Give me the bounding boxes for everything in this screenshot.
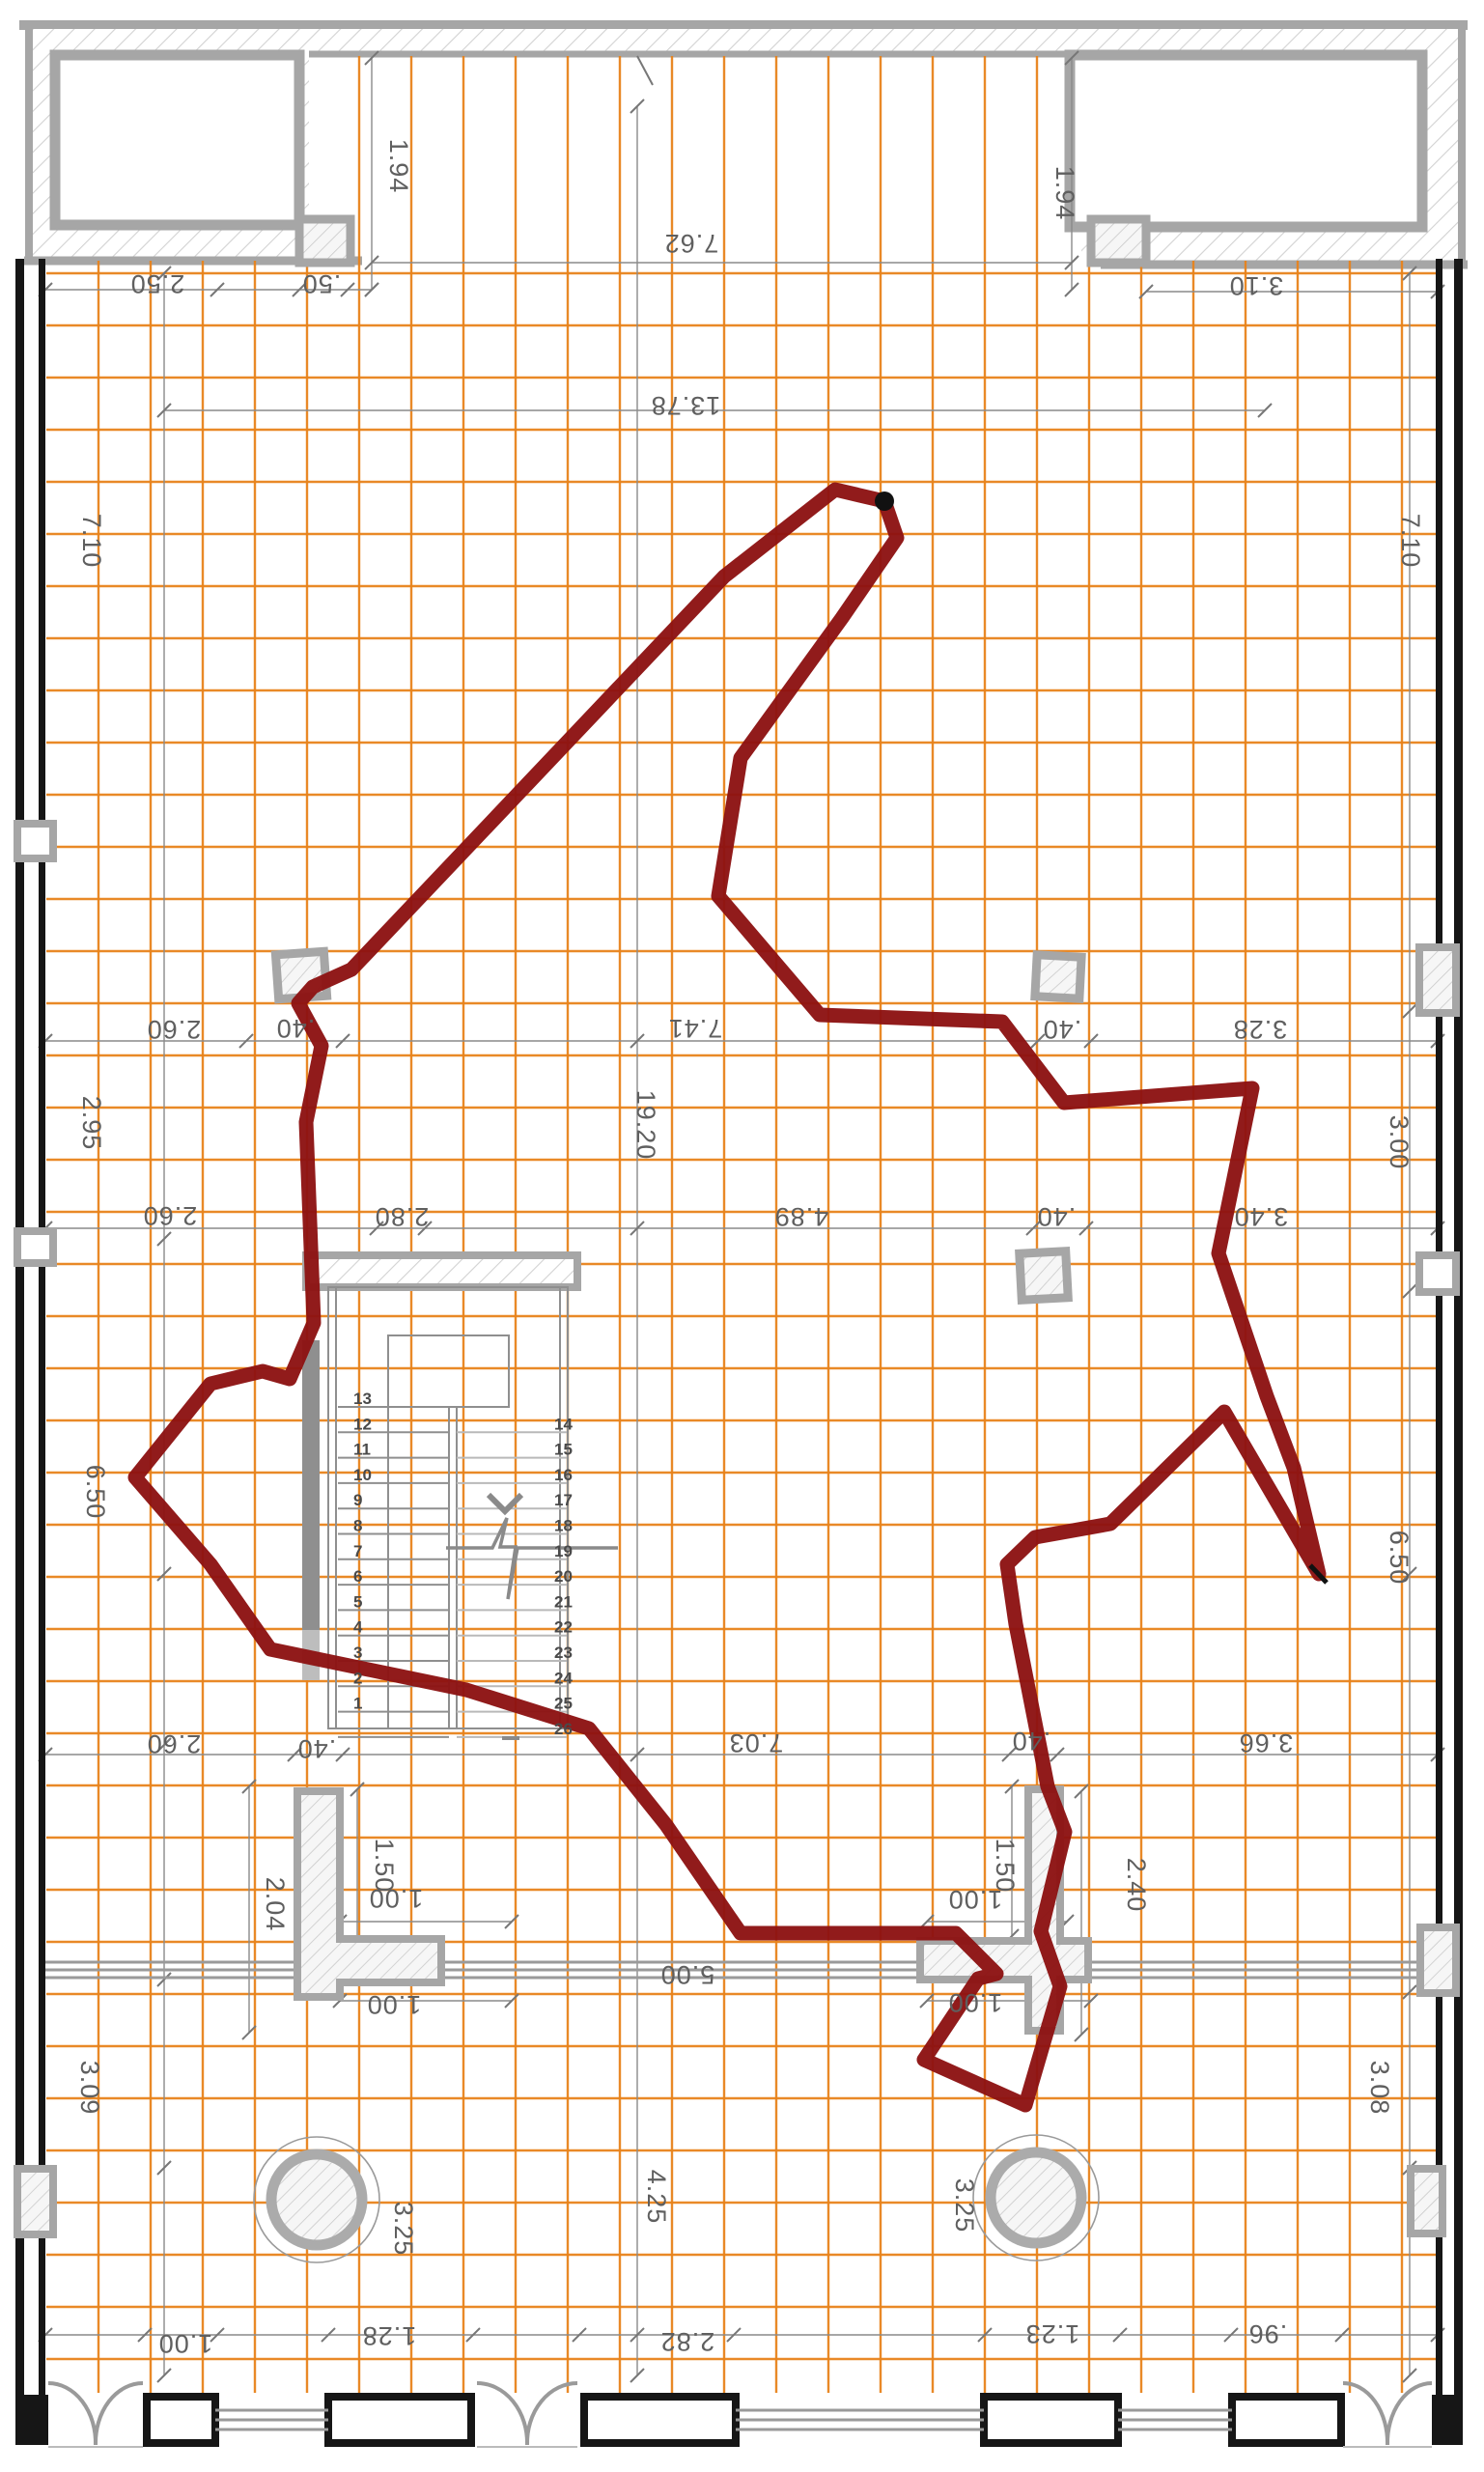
route-start-dot — [875, 492, 894, 511]
dimension-label: 3.10 — [1229, 271, 1284, 300]
stair-tread-number: 5 — [353, 1592, 362, 1611]
dimension-label: 1.28 — [362, 2321, 417, 2350]
stair-beam — [306, 1255, 577, 1287]
dimension-label: 3.00 — [1385, 1115, 1414, 1170]
dimension-label: 1.23 — [1025, 2319, 1080, 2348]
stair-tread-number: 8 — [353, 1517, 362, 1535]
wall-pilaster — [17, 1231, 53, 1263]
stair-tread-number: 15 — [554, 1441, 573, 1459]
stair-tread-number: 20 — [554, 1567, 573, 1586]
dimension-label: 7.10 — [77, 514, 106, 569]
dimension-label: 3.28 — [1233, 1015, 1288, 1044]
stair-tread-number: 14 — [554, 1415, 573, 1433]
dimension-label: 3.66 — [1239, 1728, 1294, 1757]
dimension-label: 7.41 — [668, 1014, 723, 1043]
dimension-label: 2.50 — [130, 269, 185, 298]
floor-plan-screenshot: 1312111098765432114151617181920212223242… — [0, 0, 1484, 2472]
stair-tread-number: 16 — [554, 1466, 573, 1484]
dimension-label: .50 — [302, 269, 342, 298]
stair-tread-number: 13 — [353, 1390, 372, 1408]
dimension-label: 2.60 — [143, 1201, 198, 1230]
dimension-label: 6.50 — [81, 1465, 110, 1520]
dimension-label: .40 — [1012, 1727, 1051, 1756]
stair-tread-number: 17 — [554, 1491, 573, 1509]
stair-tread-number: 12 — [353, 1415, 372, 1433]
dimension-label: 2.40 — [1122, 1858, 1151, 1913]
stair-tread-number: 1 — [353, 1695, 362, 1713]
stair-tread-number: 9 — [353, 1491, 362, 1509]
dimension-label: 3.25 — [389, 2202, 418, 2257]
wall-pilaster — [1419, 1255, 1456, 1292]
stair-tread-number: 21 — [554, 1592, 573, 1611]
dimension-label: .40 — [1037, 1202, 1077, 1231]
wall-window — [1419, 947, 1456, 1013]
dimension-label: 1.50 — [370, 1839, 399, 1894]
stair-tread-number: 19 — [554, 1542, 573, 1560]
dimension-label: 6.50 — [1385, 1531, 1414, 1586]
stair-tread-number: 7 — [353, 1542, 362, 1560]
dimension-label: 2.60 — [147, 1015, 202, 1044]
column — [1035, 955, 1081, 998]
dimension-label: 4.25 — [642, 2170, 671, 2225]
stair-tread-number: 3 — [353, 1643, 362, 1662]
round-column — [991, 2152, 1081, 2243]
dimension-label: 2.60 — [147, 1729, 202, 1758]
dimension-label: 1.50 — [991, 1839, 1020, 1894]
dimension-label: 1.00 — [367, 1990, 422, 2019]
dimension-label: 2.80 — [375, 1202, 430, 1231]
dimension-label: 2.95 — [77, 1096, 106, 1151]
dimension-label: 3.40 — [1234, 1202, 1289, 1231]
dimension-label: .40 — [297, 1734, 337, 1763]
dimension-label: 1.94 — [384, 139, 413, 194]
wall-window — [1420, 1927, 1456, 1993]
dimension-label: 13.78 — [651, 391, 721, 420]
column — [1020, 1251, 1068, 1300]
dimension-label: 3.09 — [75, 2061, 104, 2116]
dimension-label: 2.82 — [660, 2327, 715, 2356]
wall-pilaster — [17, 824, 53, 858]
column — [1091, 219, 1146, 263]
round-column — [271, 2154, 362, 2245]
dimension-label: 3.08 — [1365, 2061, 1394, 2116]
dimension-label: 7.10 — [1396, 514, 1425, 569]
top-terrace-structure — [19, 25, 1468, 265]
stair-tread-number: 2 — [353, 1669, 362, 1687]
dimension-label: 4.89 — [774, 1202, 829, 1231]
stair-tread-number: 6 — [353, 1567, 362, 1586]
stair-tread-number: 11 — [353, 1441, 371, 1459]
interior-structures — [17, 219, 1456, 2262]
dimension-label: 1.00 — [158, 2329, 213, 2358]
floor-plan-canvas: 1312111098765432114151617181920212223242… — [0, 0, 1484, 2472]
wall-window — [1411, 2169, 1442, 2233]
dimension-lines — [39, 51, 1444, 2382]
stair-tread-number: 22 — [554, 1618, 573, 1637]
stair-tread-number: 24 — [554, 1669, 573, 1687]
stair-handrail-bar — [302, 1340, 320, 1630]
stair-tread-number: 25 — [554, 1695, 573, 1713]
stair-tread-number: 26 — [554, 1720, 573, 1738]
wall-window — [17, 2169, 53, 2234]
stair-tread-number: 18 — [554, 1517, 573, 1535]
column — [299, 219, 350, 263]
stair-tread-number: 23 — [554, 1643, 573, 1662]
dimension-label: .96 — [1248, 2319, 1288, 2348]
dimension-label: 1.94 — [1050, 166, 1079, 221]
dimension-label: 19.20 — [631, 1090, 660, 1161]
stair-tread-number: 4 — [353, 1618, 363, 1637]
dimension-label: 5.00 — [660, 1960, 715, 1989]
dimension-label: 3.25 — [950, 2178, 979, 2233]
dimension-label: 7.62 — [664, 229, 719, 258]
dimension-label: 7.03 — [729, 1728, 784, 1757]
dimension-label: .40 — [276, 1014, 316, 1043]
dimension-label: .40 — [1043, 1015, 1082, 1044]
dimension-label: 2.04 — [261, 1877, 290, 1932]
dimension-label: 1.00 — [948, 1988, 1003, 2017]
stair-tread-number: 10 — [353, 1466, 372, 1484]
